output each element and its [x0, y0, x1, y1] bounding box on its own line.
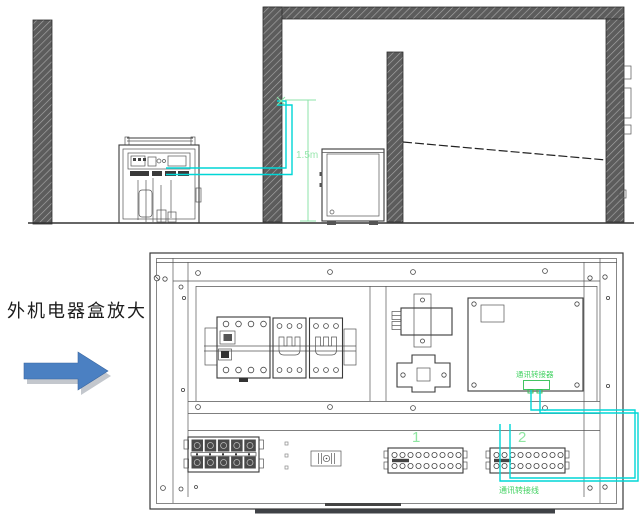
terminal-block-2-label: 2 — [518, 430, 526, 445]
power-terminals-row-bottom — [192, 457, 256, 469]
room-middle-wall — [387, 52, 403, 222]
dimension-label: 1.5m — [296, 151, 318, 161]
unit-electrical-compartment — [128, 153, 190, 176]
room-right-wall — [606, 19, 624, 222]
site-elevation-drawing — [28, 7, 634, 225]
cad-screenshot: 外机电器盒放大 1.5m 1 2 通讯转接器 通讯转接线 — [0, 0, 640, 514]
terminal-block-1-label: 1 — [412, 430, 420, 445]
enlarged-box-drawing — [150, 253, 638, 514]
blue-arrow — [24, 352, 111, 395]
cad-drawing — [0, 0, 640, 514]
wall-left-column — [33, 20, 52, 224]
box-bottom-shadow — [255, 510, 555, 514]
indoor-unit-drawing — [320, 149, 385, 225]
unit-piping-compartment — [138, 178, 176, 222]
room-left-wall — [263, 7, 282, 222]
callout-label: 外机电器盒放大 — [7, 302, 147, 320]
power-terminals-row-top — [192, 440, 256, 452]
outdoor-unit-drawing — [119, 137, 201, 223]
box-frame — [150, 253, 623, 514]
comm-wire-label: 通讯转接线 — [499, 487, 539, 495]
sloped-pipe-line — [403, 142, 606, 160]
ceiling-slab — [264, 7, 624, 19]
comm-adapter-label: 通讯转接器 — [516, 371, 554, 379]
walls — [33, 7, 624, 224]
